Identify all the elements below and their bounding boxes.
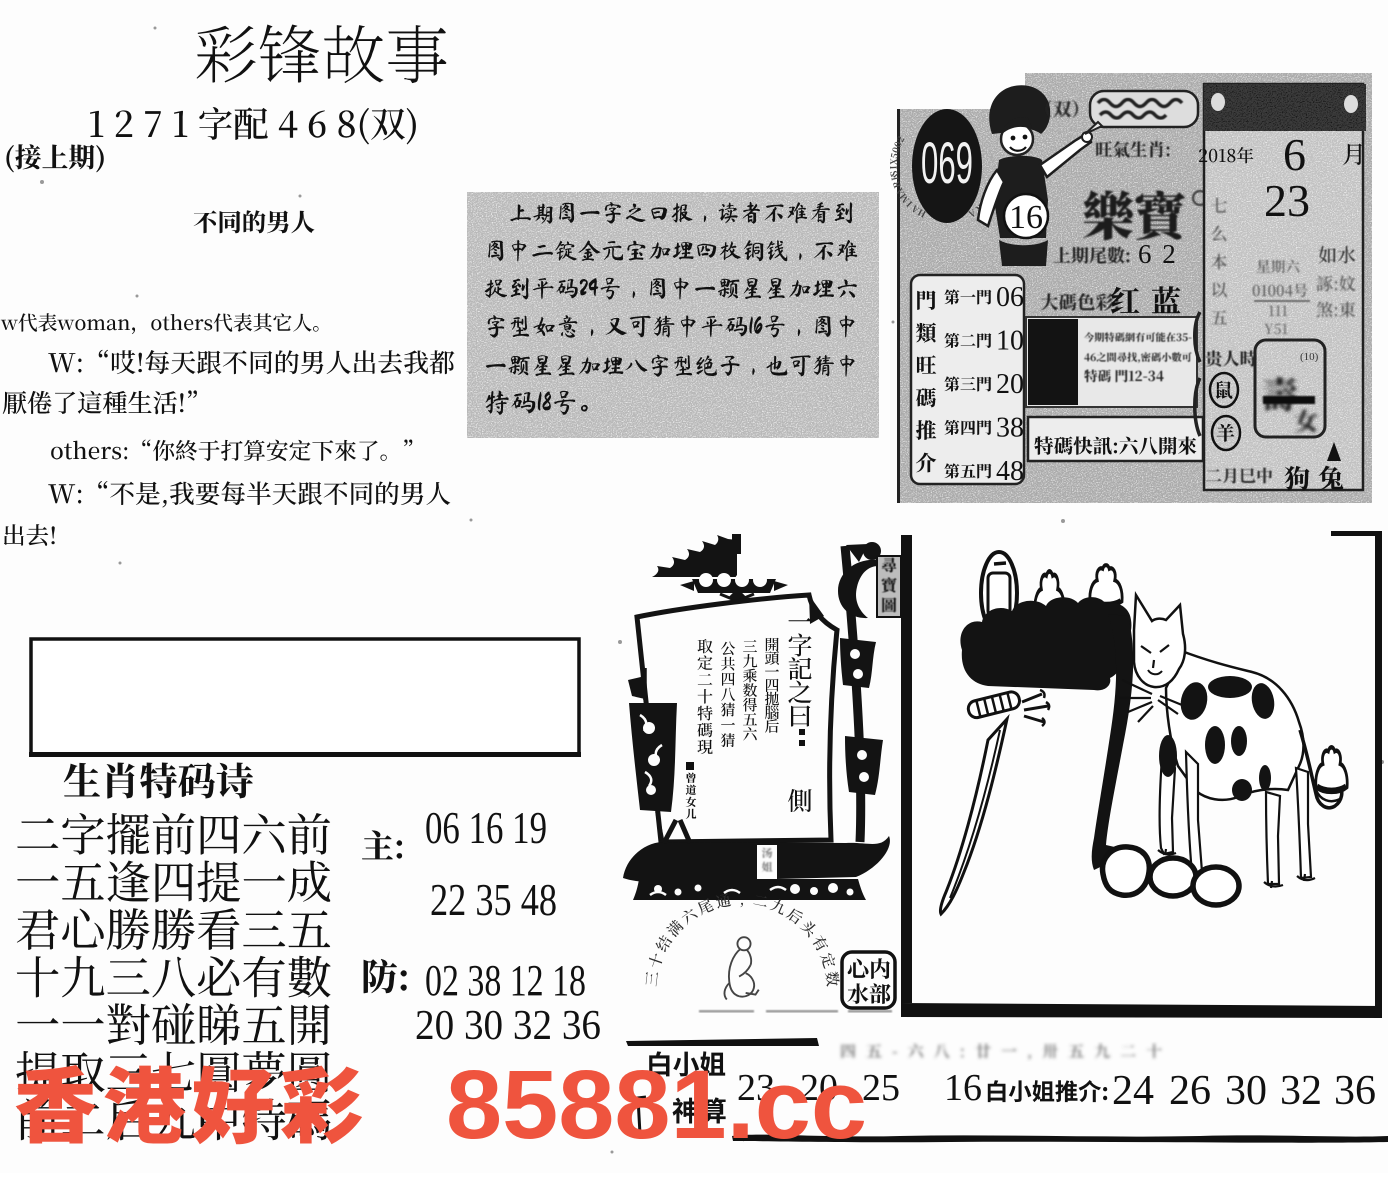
svg-text:38: 38 — [996, 413, 1024, 444]
svg-text:06 16 19: 06 16 19 — [425, 802, 547, 853]
svg-text:23: 23 — [1264, 175, 1310, 226]
svg-text:16: 16 — [1009, 199, 1043, 236]
svg-text:30: 30 — [1225, 1068, 1267, 1114]
svg-text:85881.cc: 85881.cc — [446, 1050, 867, 1159]
svg-text:6: 6 — [1283, 129, 1306, 180]
svg-text:02 38 12 18: 02 38 12 18 — [425, 956, 586, 1005]
svg-text:25: 25 — [862, 1067, 900, 1109]
svg-text:10: 10 — [996, 326, 1024, 357]
svg-text:20: 20 — [996, 369, 1024, 400]
svg-text:24: 24 — [1112, 1068, 1154, 1114]
svg-text:06: 06 — [996, 282, 1024, 313]
svg-text:6 2: 6 2 — [1138, 239, 1178, 269]
svg-text:22 35 48: 22 35 48 — [430, 874, 557, 925]
svg-text:(10): (10) — [1300, 351, 1319, 363]
svg-text:48: 48 — [996, 456, 1024, 487]
svg-text:36: 36 — [1334, 1068, 1376, 1114]
svg-text:069: 069 — [921, 131, 973, 196]
svg-text:32: 32 — [1280, 1068, 1322, 1114]
svg-text:16: 16 — [944, 1067, 982, 1109]
svg-text:26: 26 — [1169, 1068, 1211, 1114]
svg-text:20 30 32 36: 20 30 32 36 — [415, 1003, 601, 1049]
